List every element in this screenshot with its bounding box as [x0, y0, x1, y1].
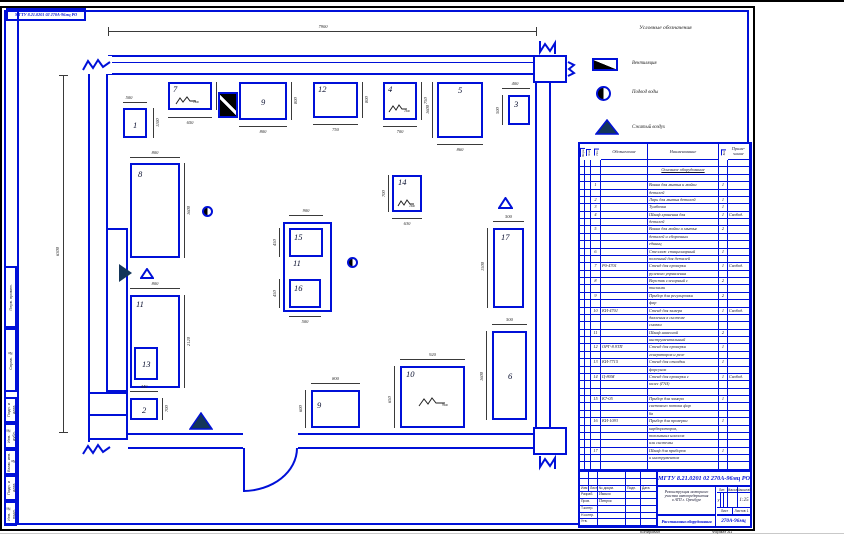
side-box-sprav: Справ. № — [4, 328, 17, 392]
dim-label: 700 — [381, 179, 386, 209]
dim-label: 900 — [289, 208, 323, 213]
spec-cell: Шкаф хранения для — [648, 212, 719, 219]
spec-cell — [648, 175, 719, 182]
side-box-podp-data-1: Подп. и дата — [4, 397, 17, 423]
frame-margin-line — [17, 10, 19, 525]
spec-cell — [601, 352, 648, 359]
spec-cell — [728, 344, 750, 351]
compressed-air-symbol — [595, 119, 619, 136]
compressed-air-symbol — [119, 264, 132, 282]
equipment-number: 9 — [317, 400, 321, 410]
equipment-1: 1 — [123, 108, 147, 138]
dim-label: 450 — [272, 230, 277, 255]
spec-cell — [601, 204, 648, 211]
dim-line — [394, 366, 395, 428]
spec-cell — [591, 219, 601, 226]
spec-cell — [591, 352, 601, 359]
sig-cell — [641, 479, 657, 486]
spec-cell: светового потока фар — [648, 403, 719, 410]
sig-role-cell: Утв. — [580, 519, 598, 526]
sig-cell — [580, 472, 589, 479]
sig-cell — [641, 506, 657, 513]
spec-cell — [728, 367, 750, 374]
spec-cell — [728, 411, 750, 418]
sig-cell — [641, 492, 657, 499]
sink-symbol — [218, 92, 238, 118]
sheets-label: Листов — [735, 509, 746, 513]
spec-cell — [591, 440, 601, 447]
spec-cell: КИ-1093 — [601, 418, 648, 425]
dim-line — [502, 95, 503, 125]
equipment-2: 2 — [130, 398, 158, 420]
water-supply-symbol — [596, 86, 611, 101]
dim-line — [493, 221, 524, 222]
spec-cell: фар — [648, 300, 719, 307]
wall-bottom-right-inner — [298, 447, 535, 449]
dim-label: 1100 — [155, 110, 160, 136]
water-supply-symbol — [347, 257, 358, 268]
power-label: 1кв — [409, 203, 415, 208]
spec-cell — [601, 448, 648, 455]
equipment-7: 7 1кв — [168, 82, 212, 110]
spec-cell — [601, 234, 648, 241]
spec-cell: Тумбочка — [648, 204, 719, 211]
spec-cell: деталей — [648, 190, 719, 197]
dim-line — [130, 288, 180, 289]
spec-cell — [719, 381, 728, 388]
spec-cell — [601, 160, 648, 167]
spec-cell: 1 — [719, 344, 728, 351]
spec-cell: 2 — [719, 293, 728, 300]
dim-label: 1600 — [479, 362, 484, 392]
spec-table-header: Форм. Зона Поз. Обозначение Наименование… — [580, 144, 750, 160]
sig-cell — [598, 479, 626, 486]
spec-cell: Стенд для проверки — [648, 344, 719, 351]
spec-cell: 16 — [591, 418, 601, 425]
spec-cell — [591, 367, 601, 374]
spec-cell — [719, 433, 728, 440]
spec-cell: 1 — [719, 249, 728, 256]
spec-cell — [728, 418, 750, 425]
spec-cell: 8 — [591, 278, 601, 285]
spec-cell: смазки — [648, 322, 719, 329]
sig-cell — [641, 519, 657, 526]
dim-line — [502, 88, 530, 89]
spec-cell: 2 — [719, 278, 728, 285]
description-line: в АТП г. Оренбург — [658, 498, 715, 502]
sig-cell — [580, 479, 589, 486]
wall-break-bottom-left — [82, 442, 112, 458]
spec-cell — [601, 226, 648, 233]
spec-cell — [591, 411, 601, 418]
fire-extinguisher-symbol — [140, 268, 154, 280]
spec-cell — [719, 256, 728, 263]
dim-label: 800 — [239, 129, 287, 134]
spec-cell — [601, 300, 648, 307]
sig-cell — [598, 472, 626, 479]
spec-cell — [728, 226, 750, 233]
spec-cell: 1 — [719, 359, 728, 366]
legend-label: Подвод воды — [632, 90, 750, 95]
spec-header-qty: Кол. — [721, 149, 726, 155]
equipment-number: 2 — [142, 405, 146, 415]
spec-header-name: Наименование — [648, 144, 719, 160]
dim-tick — [59, 75, 68, 76]
dim-tick — [108, 27, 109, 36]
dim-line — [437, 144, 483, 145]
dim-line-top — [108, 31, 537, 32]
spec-cell — [728, 271, 750, 278]
dim-label: 800 — [364, 87, 369, 113]
spec-cell: 7 — [591, 263, 601, 270]
drawing-sheet: { "sheet": { "corner_stamp": "МГТУ 8.21.… — [0, 0, 844, 536]
spec-cell — [601, 315, 648, 322]
spec-cell — [601, 167, 648, 174]
spec-cell — [719, 455, 728, 462]
spec-cell — [591, 322, 601, 329]
spec-cell: 2 — [591, 197, 601, 204]
spec-cell: Ларь для мытья деталей — [648, 197, 719, 204]
spec-cell — [601, 322, 648, 329]
title-block: ИзмЛист№ докум.Подп.ДатаРазраб.ИвановПро… — [578, 470, 752, 528]
spec-cell — [719, 337, 728, 344]
spec-header-note: Приме-чание — [728, 144, 750, 160]
dim-label: 800 — [311, 376, 360, 381]
spec-cell: топливных насосов — [648, 433, 719, 440]
spec-cell — [728, 322, 750, 329]
spec-cell — [601, 271, 648, 278]
spec-cell: 15 — [591, 396, 601, 403]
equipment-number: 13 — [142, 359, 151, 369]
wall-top-outer — [108, 55, 537, 57]
spec-cell: 1 — [719, 374, 728, 381]
spec-cell — [591, 300, 601, 307]
spec-cell — [648, 160, 719, 167]
spec-cell — [591, 190, 601, 197]
equipment-6: 6 — [492, 331, 527, 420]
spec-cell — [591, 160, 601, 167]
dim-label: 500 — [493, 214, 524, 219]
spec-cell — [719, 315, 728, 322]
spec-cell — [591, 389, 601, 396]
spec-cell — [719, 367, 728, 374]
equipment-12: 12 — [313, 82, 358, 118]
dim-line — [184, 163, 185, 258]
spec-cell — [601, 241, 648, 248]
sig-header-cell: Подп. — [626, 486, 641, 493]
spec-cell: Стенд для проверки с — [648, 374, 719, 381]
equipment-number: 17 — [501, 232, 510, 242]
spec-cell: 9 — [591, 293, 601, 300]
spec-cell — [591, 433, 601, 440]
doc-number: МГТУ 8.21.0201 02 270А-96мц РО — [658, 472, 750, 487]
spec-cell — [591, 167, 601, 174]
spec-cell: Основное оборудование — [648, 167, 719, 174]
footer-format: Формат А1 — [712, 529, 732, 534]
dim-line — [392, 218, 422, 219]
legend-label: Вентиляция — [632, 61, 750, 66]
spec-cell: Ванна для мытья и мойки — [648, 182, 719, 189]
dim-label: 500 — [289, 319, 321, 324]
dim-label: 500 — [492, 317, 527, 322]
equipment-number: 5 — [458, 85, 462, 95]
spec-cell — [728, 256, 750, 263]
equipment-number: 16 — [294, 283, 303, 293]
side-box-label: Перв. примен. — [8, 284, 13, 311]
dim-label: 630 — [392, 221, 422, 226]
side-box-label: Инв. № подл. — [6, 503, 16, 524]
spec-cell: Прибор для проверки — [648, 418, 719, 425]
equipment-10: 10 9кв — [400, 366, 465, 428]
spec-cell — [719, 352, 728, 359]
spec-cell: 12 — [591, 344, 601, 351]
spec-cell: колес (ГАЗ) — [648, 381, 719, 388]
spec-cell: деталей и сборочных — [648, 234, 719, 241]
power-label: 1кв — [193, 99, 199, 104]
spec-cell — [728, 426, 750, 433]
spec-cell — [719, 462, 728, 469]
dim-label: 2120 — [186, 326, 191, 358]
dim-line — [130, 157, 180, 158]
spec-cell: 1 — [719, 448, 728, 455]
spec-cell: Ц-80М — [601, 374, 648, 381]
spec-cell: Стенд для замера — [648, 308, 719, 315]
equipment-9-bottom: 9 — [311, 390, 360, 428]
column-top-right — [533, 55, 567, 83]
spec-cell: 2 — [719, 226, 728, 233]
spec-cell — [728, 234, 750, 241]
spec-cell — [728, 396, 750, 403]
spec-cell: КИ-7715 — [601, 359, 648, 366]
spec-header-format: Форм. — [580, 148, 585, 157]
spec-cell — [601, 367, 648, 374]
dim-label: 700 — [164, 398, 169, 420]
spec-cell: Верстак слесарный с — [648, 278, 719, 285]
spec-cell: ОРГ-8.9ТП — [601, 344, 648, 351]
sig-header-cell: Изм — [580, 486, 589, 493]
sink-symbol — [592, 58, 618, 71]
sheets-cell: Листов 1 — [733, 507, 750, 514]
dim-line — [279, 228, 280, 257]
spec-cell — [719, 219, 728, 226]
spec-cell: деталей — [648, 219, 719, 226]
spec-cell — [728, 389, 750, 396]
dim-label: 800 — [130, 150, 180, 155]
compressed-air-symbol — [189, 412, 213, 431]
spec-cell — [728, 352, 750, 359]
spec-cell — [648, 462, 719, 469]
spec-cell — [591, 462, 601, 469]
spec-cell: рулевого управления — [648, 271, 719, 278]
spec-cell: карбюраторов, — [648, 426, 719, 433]
spec-cell — [728, 167, 750, 174]
doc-title: Расстановка оборудования — [658, 514, 716, 526]
wall-bottom-left-outer — [128, 433, 243, 435]
dim-line — [279, 279, 280, 308]
spec-cell: 14 — [591, 374, 601, 381]
sig-cell — [626, 499, 641, 506]
column-bottom-right — [533, 427, 567, 455]
sig-name-cell — [598, 519, 626, 526]
spec-cell — [728, 433, 750, 440]
spec-cell — [728, 204, 750, 211]
spec-cell — [719, 241, 728, 248]
wall-top-inner — [108, 62, 537, 63]
equipment-number: 9 — [261, 97, 265, 107]
spec-cell — [719, 322, 728, 329]
spec-cell: Стенд для проверки — [648, 263, 719, 270]
equipment-9-top: 9 — [239, 82, 287, 120]
equipment-number: 7 — [173, 84, 177, 94]
spec-cell — [601, 403, 648, 410]
water-supply-symbol — [202, 206, 213, 217]
equipment-number: 14 — [398, 177, 407, 187]
spec-cell: Шкаф для приборов — [648, 448, 719, 455]
spec-cell — [601, 330, 648, 337]
equipment-5: 5 — [437, 82, 483, 138]
spec-cell — [719, 411, 728, 418]
dim-line — [383, 126, 417, 127]
spec-table-body: Основное оборудование1Ванна для мытья и … — [580, 160, 750, 470]
spec-cell: полочный для деталей — [648, 256, 719, 263]
spec-cell: давления в системе — [648, 315, 719, 322]
spec-cell: Стеллаж стационарный — [648, 249, 719, 256]
sig-role-cell: Н.контр. — [580, 513, 598, 520]
spec-cell: 1 — [719, 418, 728, 425]
wall-bottom-left-inner — [128, 447, 243, 449]
spec-cell — [601, 285, 648, 292]
spec-cell — [728, 197, 750, 204]
dim-line — [289, 215, 323, 216]
spec-cell — [728, 448, 750, 455]
spec-header-zone: Зона — [586, 149, 591, 156]
spec-cell — [601, 256, 648, 263]
dim-line — [291, 82, 292, 120]
dim-tick — [536, 27, 537, 36]
spec-cell — [728, 249, 750, 256]
spec-cell — [728, 337, 750, 344]
sig-header-cell: Дата — [641, 486, 657, 493]
spec-cell — [648, 389, 719, 396]
spec-cell — [728, 330, 750, 337]
spec-cell — [719, 175, 728, 182]
spec-cell — [601, 389, 648, 396]
sig-name-cell: Петров — [598, 499, 626, 506]
spec-cell: 4 — [591, 212, 601, 219]
equipment-14: 14 1кв — [392, 175, 422, 212]
dim-label: 750 — [313, 127, 358, 132]
spec-cell — [719, 160, 728, 167]
power-label: 1кв — [404, 108, 410, 113]
spec-cell: 6в — [648, 411, 719, 418]
dim-label-overall-width: 7900 — [288, 24, 358, 29]
dim-label: 450 — [272, 281, 277, 306]
dim-line — [123, 102, 147, 103]
spec-cell — [601, 249, 648, 256]
spec-cell: КИ-4701 — [601, 308, 648, 315]
spec-cell — [601, 293, 648, 300]
side-box-label: Инв. № дубл. — [6, 425, 16, 447]
dim-line — [486, 331, 487, 420]
side-box-podp-data-2: Подп. и дата — [4, 475, 17, 501]
dim-tick — [59, 432, 68, 433]
image-top-border — [0, 0, 844, 2]
sig-cell — [641, 472, 657, 479]
dim-label: 1600 — [186, 196, 191, 226]
dim-label: 400 — [500, 81, 530, 86]
spec-cell: инструментальный — [648, 337, 719, 344]
spec-cell: 1 — [719, 197, 728, 204]
spec-cell: Свобод. — [728, 308, 750, 315]
spec-cell — [719, 167, 728, 174]
spec-cell — [719, 300, 728, 307]
sig-cell — [626, 472, 641, 479]
spec-cell — [719, 440, 728, 447]
sig-header-cell: № докум. — [598, 486, 626, 493]
equipment-spec-table: Форм. Зона Поз. Обозначение Наименование… — [578, 142, 752, 471]
spec-cell — [719, 271, 728, 278]
sig-cell — [641, 513, 657, 520]
spec-cell — [591, 381, 601, 388]
spec-cell — [728, 455, 750, 462]
spec-cell — [591, 337, 601, 344]
spec-cell — [601, 278, 648, 285]
spec-cell — [591, 256, 601, 263]
side-box-inv-dubl: Инв. № дубл. — [4, 423, 17, 449]
dim-line — [153, 108, 154, 138]
equipment-16: 16 — [289, 279, 321, 308]
equipment-number: 12 — [318, 84, 327, 94]
spec-cell: 5 — [591, 226, 601, 233]
spec-cell: Ванна для мойки и мытья — [648, 226, 719, 233]
dim-line — [487, 228, 488, 308]
spec-cell — [591, 455, 601, 462]
dim-label: 700 — [383, 129, 417, 134]
wall-top-face — [108, 73, 537, 75]
dim-line — [239, 126, 287, 127]
equipment-8: 8 — [130, 163, 180, 258]
dim-label: 600 — [298, 395, 303, 423]
spec-cell: 1 — [719, 263, 728, 270]
spec-cell — [601, 455, 648, 462]
dim-label: 440 — [124, 384, 164, 389]
spec-cell — [728, 175, 750, 182]
spec-cell: форсунок — [648, 367, 719, 374]
spec-cell — [728, 278, 750, 285]
spec-cell: 1 — [719, 182, 728, 189]
sig-role-cell: Разраб. — [580, 492, 598, 499]
spec-cell — [601, 462, 648, 469]
equipment-3: 3 — [508, 95, 530, 125]
spec-cell — [728, 381, 750, 388]
wall-break-top-left — [82, 56, 112, 74]
spec-cell: 13 — [591, 359, 601, 366]
spec-cell: 17 — [591, 448, 601, 455]
spec-cell — [591, 285, 601, 292]
spec-cell: 10 — [591, 308, 601, 315]
dim-line — [421, 82, 422, 120]
spec-cell — [591, 403, 601, 410]
spec-cell: 6 — [591, 249, 601, 256]
dim-label: 860 — [437, 147, 483, 152]
spec-cell — [591, 271, 601, 278]
spec-cell — [601, 197, 648, 204]
legend-title: Условные обозначения — [598, 25, 733, 31]
spec-cell: генераторов и реле — [648, 352, 719, 359]
sig-cell — [626, 513, 641, 520]
dim-line — [362, 82, 363, 118]
spec-cell: 1 — [719, 396, 728, 403]
